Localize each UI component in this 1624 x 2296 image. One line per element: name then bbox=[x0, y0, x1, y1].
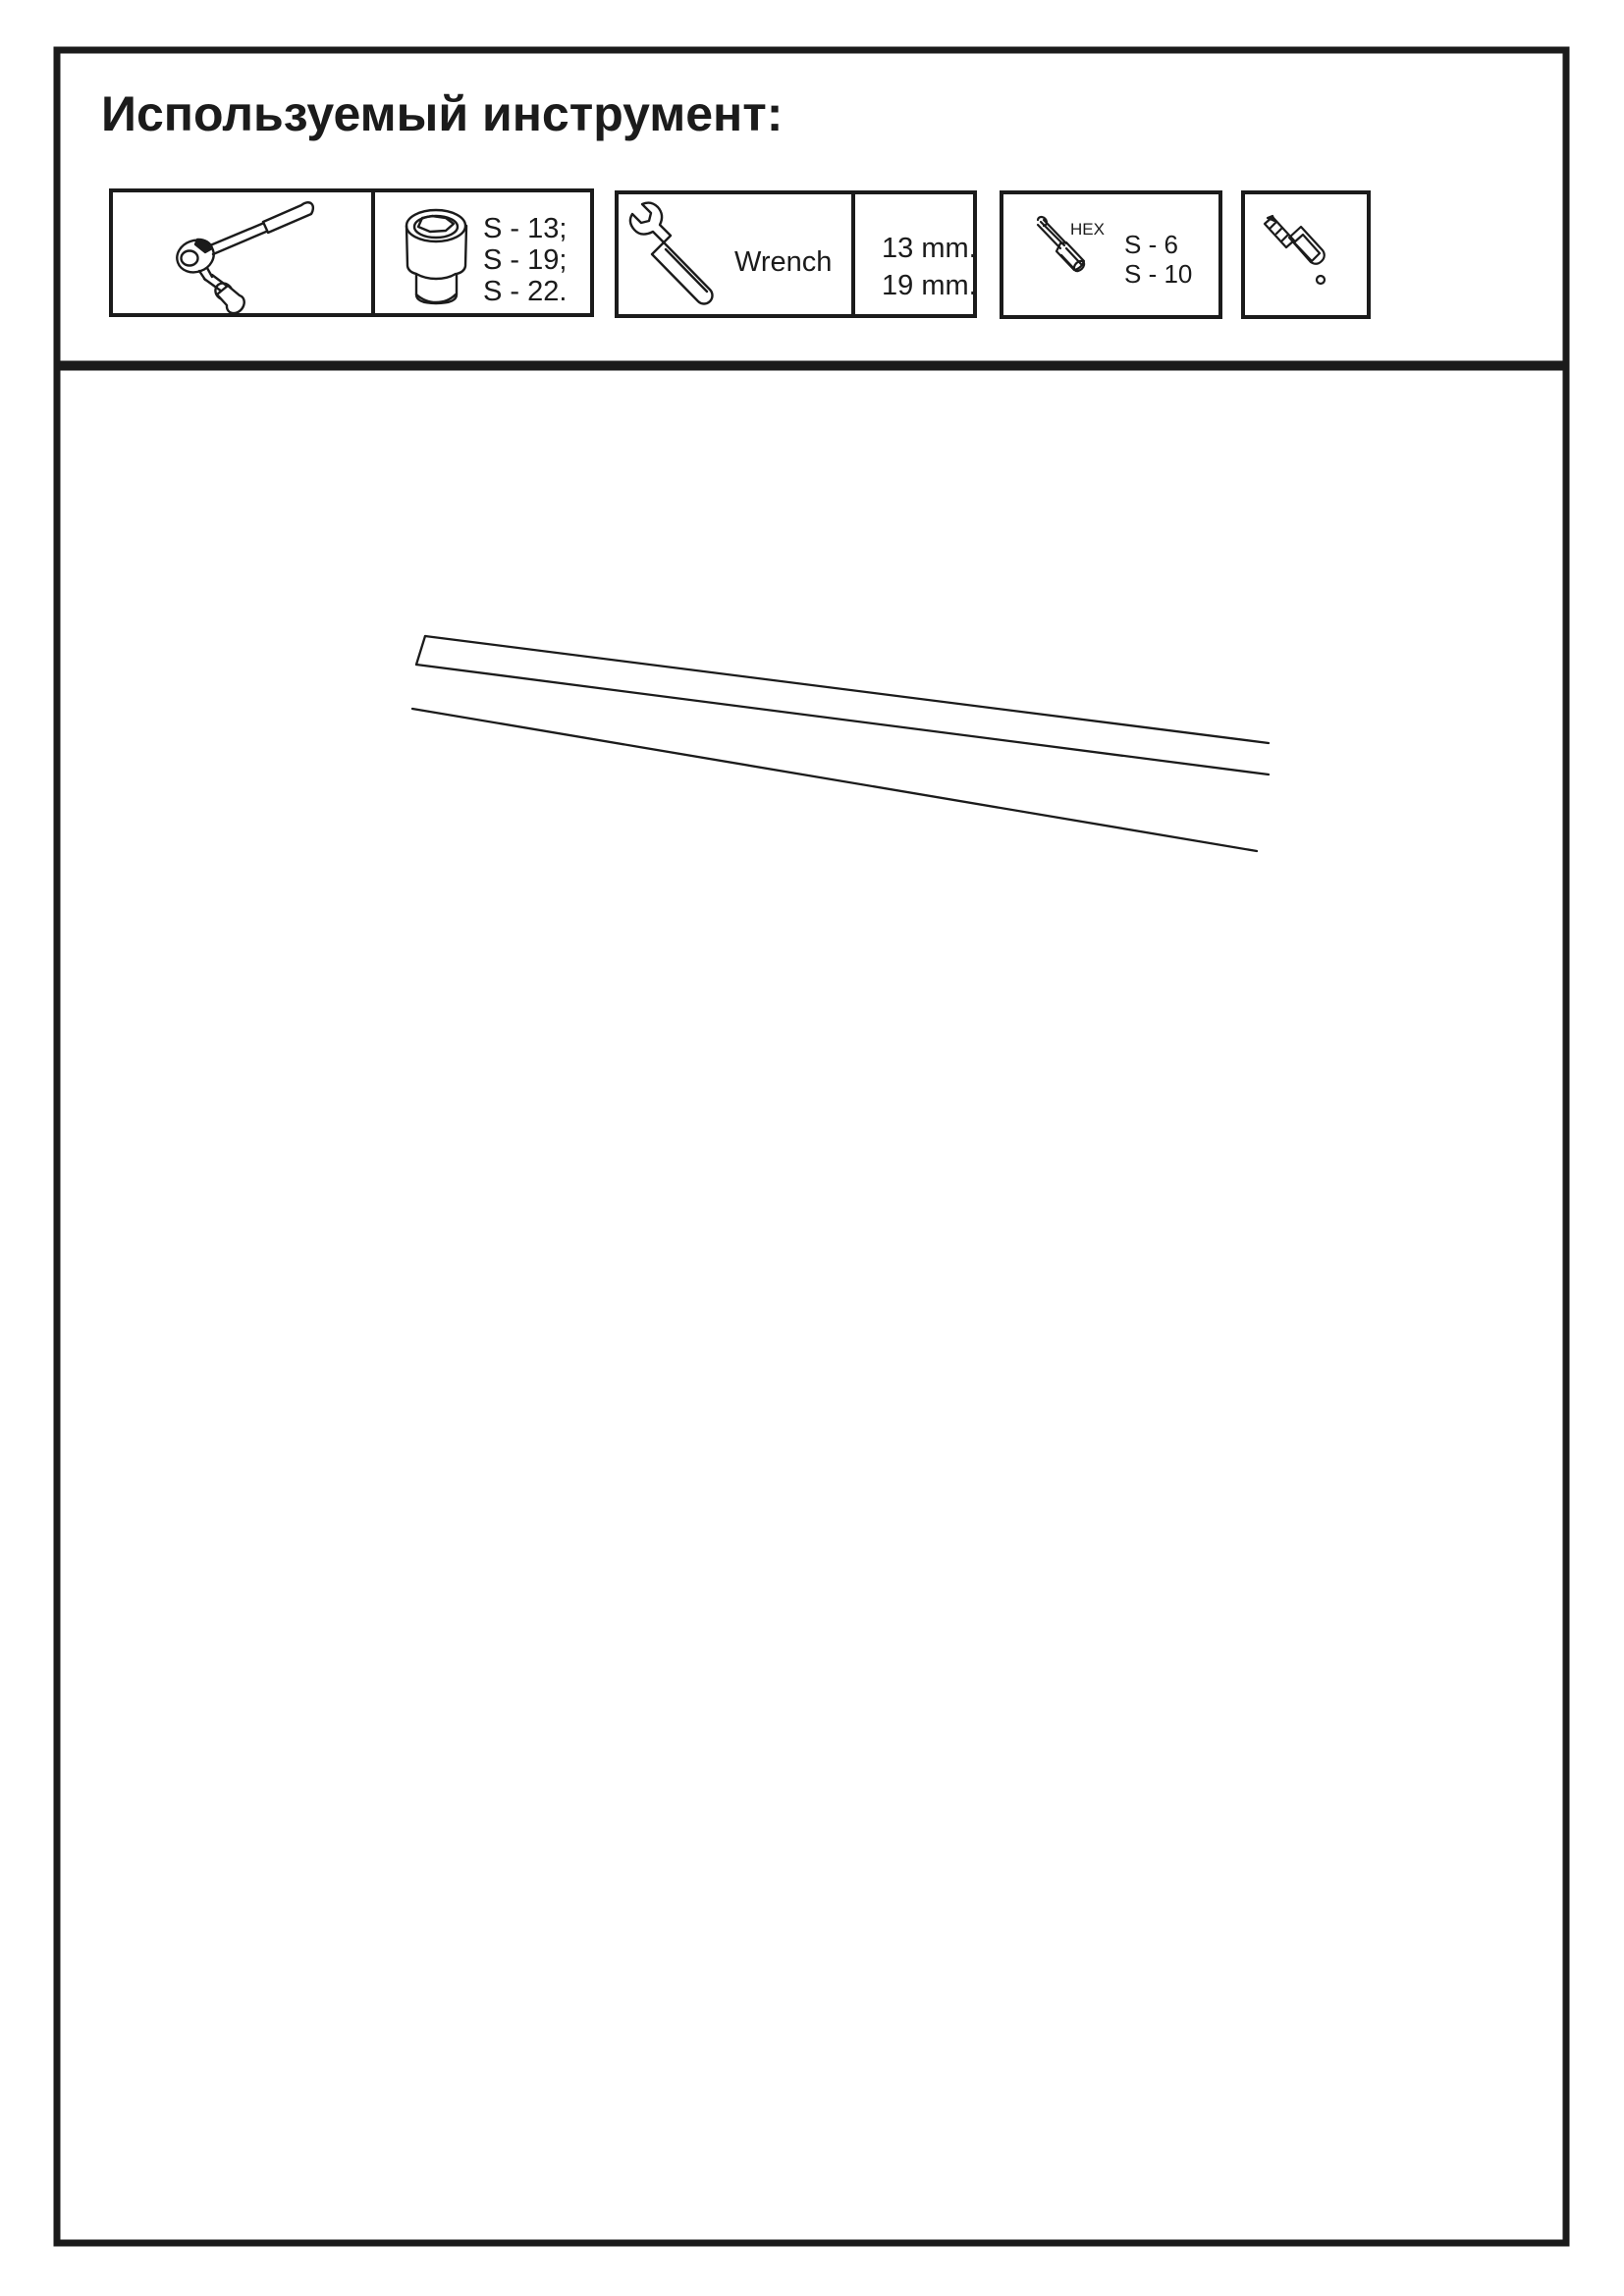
svg-text:Используемый инструмент:: Используемый инструмент: bbox=[101, 86, 783, 141]
svg-text:HEX: HEX bbox=[1070, 220, 1105, 239]
svg-text:13 mm.: 13 mm. bbox=[882, 233, 977, 264]
svg-text:19 mm.: 19 mm. bbox=[882, 270, 977, 301]
svg-text:Wrench: Wrench bbox=[734, 246, 832, 278]
svg-text:S - 10: S - 10 bbox=[1124, 259, 1192, 289]
svg-text:S - 22.: S - 22. bbox=[483, 276, 567, 307]
svg-text:S - 6: S - 6 bbox=[1124, 230, 1178, 259]
svg-text:S - 19;: S - 19; bbox=[483, 244, 567, 276]
svg-text:S - 13;: S - 13; bbox=[483, 213, 567, 244]
